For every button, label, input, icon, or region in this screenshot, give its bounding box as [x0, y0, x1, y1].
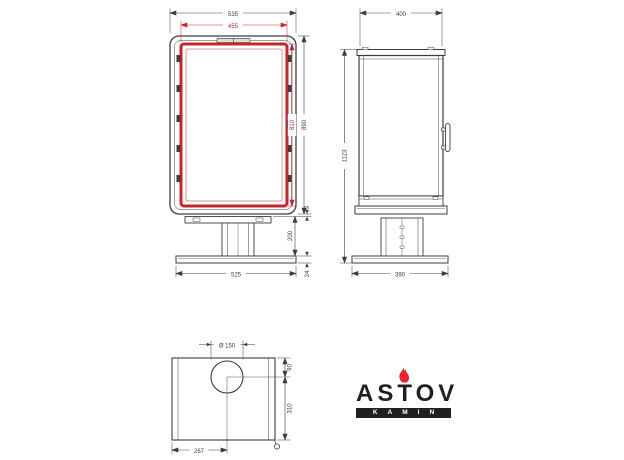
dim-side-depth: 400	[360, 9, 442, 47]
dim-front-overall-width-label: 535	[228, 12, 239, 18]
side-view: 400 1123 390	[340, 9, 450, 279]
dim-side-total-height: 1123	[340, 50, 357, 264]
dim-top-flue-from-back-label: 90	[288, 364, 294, 371]
front-top-vent	[217, 38, 250, 42]
dim-front-door-width-label: 455	[228, 24, 239, 30]
flame-icon	[396, 366, 411, 384]
dim-top-flue-from-back: 90	[277, 358, 294, 377]
dim-front-pedestal-height-label: 200	[288, 230, 294, 241]
dim-front-base-thickness-label: 24	[305, 270, 311, 277]
front-pedestal	[185, 217, 271, 257]
dim-top-flue-from-left-label: 267	[194, 449, 205, 455]
dim-side-base-depth: 390	[352, 266, 448, 279]
side-body-outline	[359, 56, 443, 197]
dim-side-depth-label: 400	[396, 12, 407, 18]
top-view: Ø 150 90 310 267	[172, 340, 294, 455]
dim-top-flue-diameter-label: Ø 150	[219, 343, 236, 349]
front-door-frame	[181, 44, 287, 206]
brand-name: ASTOV	[356, 381, 455, 407]
brand-logo: ASTOV KAMIN	[356, 366, 451, 418]
dim-top-flue-to-front-label: 310	[288, 403, 294, 414]
dim-top-flue-from-left: 267	[172, 443, 227, 455]
brand-tagline: KAMIN	[373, 408, 444, 418]
dim-front-gap-label: 9	[305, 205, 311, 209]
dim-top-flue-to-front: 310	[277, 377, 294, 440]
side-top-plate	[357, 50, 445, 56]
side-lower-section	[355, 196, 447, 214]
side-base-plate	[352, 256, 448, 263]
dim-side-base-depth-label: 390	[395, 272, 406, 278]
dim-top-flue-diameter: Ø 150	[199, 340, 255, 359]
drawing-svg: 535 455 810 890	[0, 0, 624, 460]
front-view: 535 455 810 890	[170, 9, 312, 279]
top-door-handle	[274, 440, 279, 449]
front-base-plate	[176, 256, 296, 263]
technical-drawing-sheet: 535 455 810 890	[0, 0, 624, 460]
dim-front-overall-height-label: 890	[302, 119, 308, 130]
brand-tagline-bar: KAMIN	[356, 408, 451, 418]
dim-front-base-width-label: 525	[231, 272, 242, 278]
side-pedestal	[381, 218, 423, 256]
dim-side-total-height-label: 1123	[343, 149, 349, 163]
dim-front-overall-height: 890	[298, 36, 312, 214]
dim-front-pedestal-height: 200	[288, 217, 295, 257]
dim-front-base-thickness: 24	[298, 252, 312, 278]
dim-front-base-width: 525	[176, 266, 296, 279]
dim-front-door-height-label: 810	[290, 119, 296, 130]
